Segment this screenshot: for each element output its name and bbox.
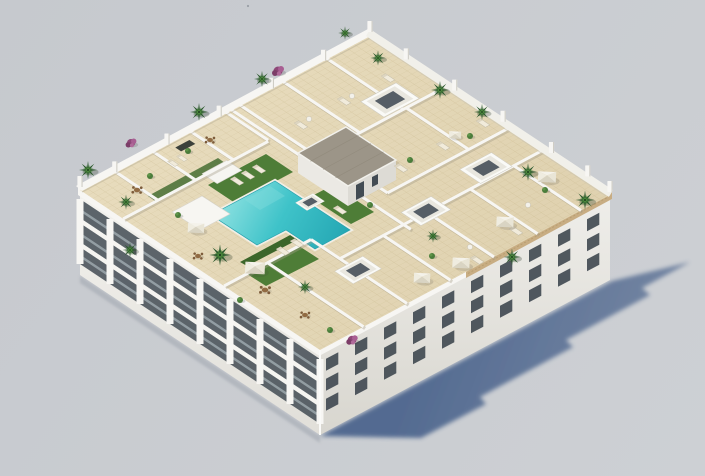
dust-speck: [247, 5, 249, 7]
wall-pillar: [404, 48, 409, 59]
wall-pillar: [452, 80, 457, 91]
side-table: [349, 93, 354, 98]
side-table: [467, 244, 472, 249]
wall-pillar: [501, 111, 506, 122]
side-table: [525, 202, 530, 207]
wall-pillar: [367, 21, 372, 32]
wall-pillar: [321, 50, 326, 61]
wall-pillar: [164, 134, 169, 145]
wall-pillar: [217, 106, 222, 117]
wall-pillar: [585, 165, 590, 176]
wall-pillar: [607, 181, 612, 192]
wall-pillar: [549, 142, 554, 153]
side-table: [306, 116, 311, 121]
wall-pillar: [112, 161, 117, 172]
architectural-render: Rooftop pool terrace - aerial 3D archite…: [0, 0, 705, 476]
wall-pillar: [77, 176, 82, 187]
render-canvas: Rooftop pool terrace - aerial 3D archite…: [0, 0, 705, 476]
